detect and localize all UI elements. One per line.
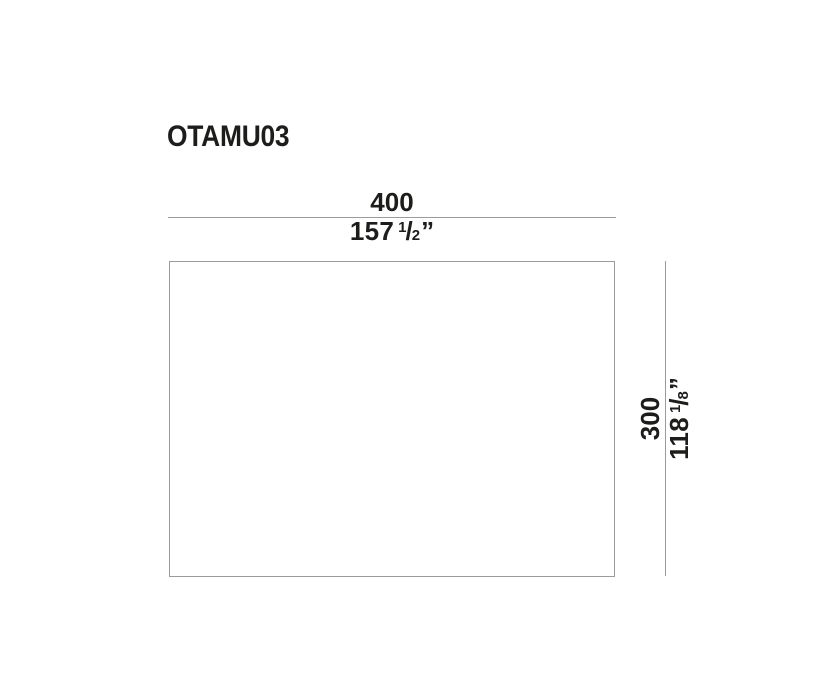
height-imperial-whole: 118 xyxy=(664,417,694,460)
width-fraction-denominator: 2 xyxy=(412,227,420,244)
height-dimension: 300 1181/8” xyxy=(637,261,697,576)
width-inch-mark: ” xyxy=(421,216,434,246)
height-fraction-numerator: 1 xyxy=(667,405,684,413)
height-imperial-label: 1181/8” xyxy=(666,377,697,460)
width-fraction-numerator: 1 xyxy=(398,219,406,236)
height-metric-label: 300 xyxy=(637,397,665,440)
height-inch-mark: ” xyxy=(664,377,694,390)
product-code: OTAMU03 xyxy=(167,122,289,152)
width-dimension: 400 1571/2” xyxy=(168,189,616,249)
diagram-canvas: OTAMU03 400 1571/2” 300 1181/8” xyxy=(0,0,840,679)
height-fraction-denominator: 8 xyxy=(675,391,692,399)
width-imperial-whole: 157 xyxy=(350,216,394,246)
width-imperial-label: 1571/2” xyxy=(350,218,434,249)
width-metric-label: 400 xyxy=(370,189,413,217)
tabletop-outline xyxy=(169,261,615,577)
